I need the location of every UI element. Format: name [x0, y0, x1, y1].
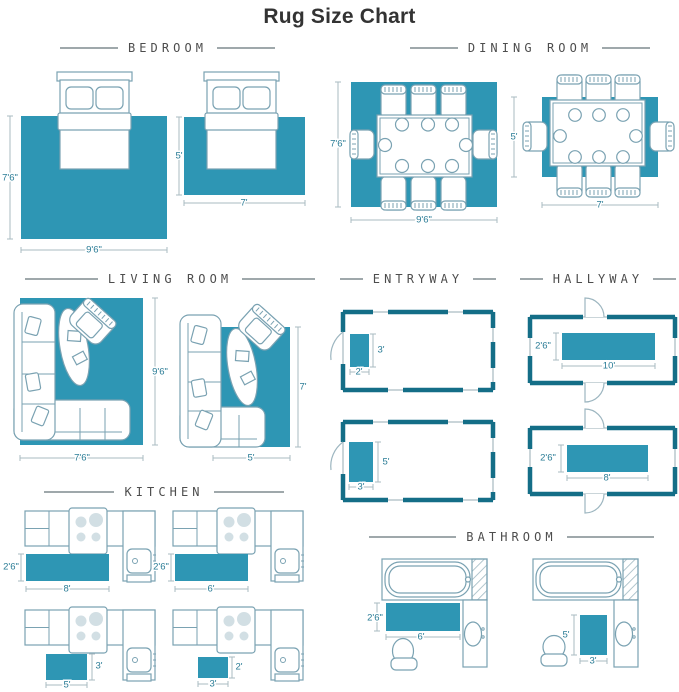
entryway-diagram: 3' 2' 5' 3' [328, 290, 505, 505]
kitchen-counter [25, 607, 156, 681]
rug [350, 334, 369, 367]
dimension-label: 7'6" [74, 453, 90, 464]
door-swing [585, 409, 604, 428]
dimension-label: 5' [247, 453, 254, 464]
section-header-entryway: ENTRYWAY [340, 271, 496, 287]
dimension-label: 2'6" [153, 562, 169, 573]
header-rule [369, 536, 456, 538]
dimension-label: 6' [417, 632, 424, 643]
section-header-bathroom: BATHROOM [369, 529, 654, 545]
hallway-room-1: 2'6" 10' [530, 298, 675, 402]
entryway-room-2: 5' 3' [331, 422, 493, 500]
header-rule [567, 536, 654, 538]
section-label: BEDROOM [128, 41, 207, 55]
door-swing [585, 494, 604, 513]
rug [567, 445, 648, 472]
dimension-label: 3' [589, 656, 596, 667]
bathroom-layout-1: 2'6" 6' [360, 548, 515, 688]
bedroom-small-diagram: 5' 7' [172, 62, 330, 212]
header-rule [410, 47, 458, 49]
dimension-label: 2' [355, 367, 362, 378]
section-header-kitchen: KITCHEN [44, 484, 284, 500]
bed [204, 72, 279, 169]
kitchen-layout-3: 3' 5' [0, 600, 165, 692]
dimension-label: 2'6" [367, 613, 383, 624]
bedroom-large-diagram: 7'6" 9'6" [0, 62, 180, 267]
section-header-dining-room: DINING ROOM [410, 40, 650, 56]
door-swing [331, 332, 343, 360]
dimension-label: 5' [175, 151, 182, 162]
dimension-label: 3' [95, 661, 102, 672]
dimension-label: 5' [562, 630, 569, 641]
dimension-label: 8' [603, 473, 610, 484]
header-rule [340, 278, 363, 280]
section-label: DINING ROOM [468, 41, 592, 55]
rug [580, 615, 607, 655]
toilet [391, 639, 417, 671]
hallway-room-2: 2'6" 8' [530, 409, 675, 513]
rug [562, 333, 655, 360]
dimension-label: 3' [357, 482, 364, 493]
dimension-label: 3' [209, 679, 216, 690]
dining-room-large-diagram: 7'6" 9'6" [326, 62, 516, 237]
kitchen-layout-2: 2'6" 6' [150, 505, 325, 605]
section-label: HALLYWAY [553, 272, 643, 286]
kitchen-layout-1: 2'6" 8' [0, 505, 165, 605]
dimension-label: 2' [235, 662, 242, 673]
dimension-label: 7'6" [330, 139, 346, 150]
door-swing [585, 298, 604, 317]
rug [46, 654, 87, 680]
section-header-hallway: HALLYWAY [520, 271, 676, 287]
header-rule [242, 278, 315, 280]
dimension-label: 9'6" [416, 215, 432, 226]
section-label: BATHROOM [466, 530, 556, 544]
hallway-diagram: 2'6" 10' 2'6" 8' [523, 290, 679, 518]
kitchen-layout-4: 2' 3' [150, 600, 325, 692]
bathroom-layout-2: 5' 3' [515, 548, 679, 688]
header-rule [25, 278, 98, 280]
dimension-label: 7' [596, 200, 603, 211]
section-label: LIVING ROOM [108, 272, 232, 286]
dimension-label: 9'6" [86, 245, 102, 256]
header-rule [44, 491, 114, 493]
dimension-label: 2'6" [535, 341, 551, 352]
header-rule [520, 278, 543, 280]
living-room-small-diagram: 7' 5' [175, 290, 317, 475]
rug [26, 554, 109, 581]
dimension-label: 2'6" [540, 453, 556, 464]
dimension-label: 6' [207, 584, 214, 595]
dimension-label: 5' [510, 132, 517, 143]
dimension-label: 2'6" [3, 562, 19, 573]
dimension-label: 7' [299, 382, 306, 393]
section-label: ENTRYWAY [373, 272, 463, 286]
rug-size-chart: Rug Size Chart BEDROOM DINING ROOM LIVIN… [0, 0, 679, 692]
dimension-label: 3' [377, 345, 384, 356]
dining-room-small-diagram: 5' 7' [508, 70, 679, 220]
entryway-room-1: 3' 2' [331, 312, 493, 390]
dimension-label: 10' [603, 361, 616, 372]
section-label: KITCHEN [124, 485, 203, 499]
header-rule [602, 47, 650, 49]
door-swing [585, 383, 604, 402]
dimension-label: 8' [63, 584, 70, 595]
dimension-label: 7'6" [2, 173, 18, 184]
page-title: Rug Size Chart [0, 5, 679, 29]
dimension-label: 5' [382, 457, 389, 468]
dimension-label: 9'6" [152, 367, 168, 378]
header-rule [653, 278, 676, 280]
dimension-label: 5' [63, 680, 70, 691]
header-rule [60, 47, 118, 49]
header-rule [217, 47, 275, 49]
rug [175, 554, 248, 581]
header-rule [214, 491, 284, 493]
dimension-label: 7' [240, 198, 247, 209]
rug [386, 603, 460, 631]
bed [57, 72, 132, 169]
section-header-living-room: LIVING ROOM [25, 271, 315, 287]
door-swing [331, 442, 343, 470]
section-header-bedroom: BEDROOM [60, 40, 275, 56]
rug [198, 657, 228, 678]
living-room-large-diagram: 9'6" 7'6" [8, 290, 186, 475]
header-rule [473, 278, 496, 280]
rug [349, 442, 373, 482]
